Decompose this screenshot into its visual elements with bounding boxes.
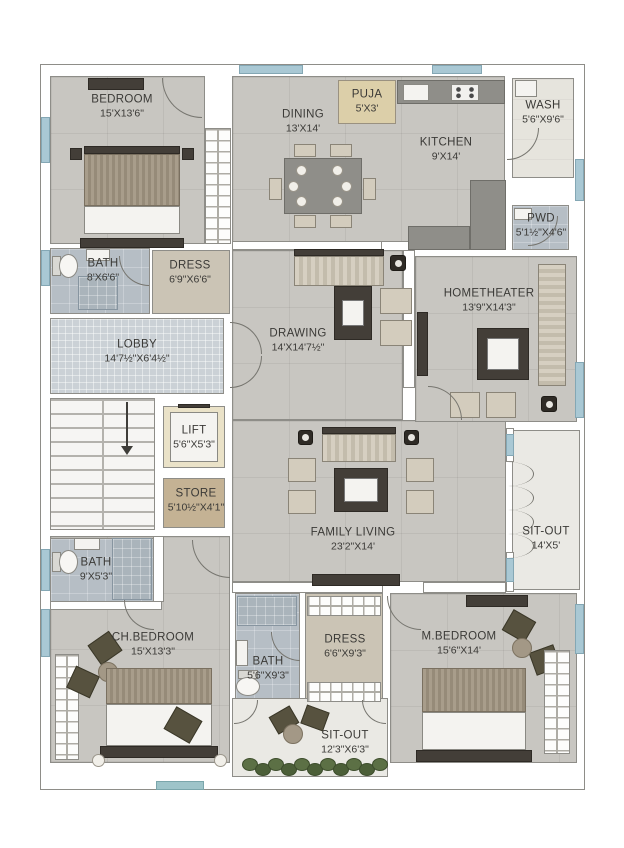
window — [156, 781, 204, 790]
room-label-lobby: LOBBY14'7½"X6'4½" — [104, 338, 169, 367]
bed-footboard — [416, 750, 532, 762]
room-dimensions: 5'6"X9'3" — [247, 670, 289, 684]
room-dimensions: 15'X13'3" — [112, 646, 194, 660]
room-dimensions: 6'6"X9'3" — [324, 648, 366, 662]
tv-screen — [342, 300, 364, 326]
room-label-wash: WASH5'6"X9'6" — [522, 99, 564, 128]
dining-chair — [294, 144, 316, 157]
speaker-dot — [408, 434, 415, 441]
lift-door — [178, 404, 210, 408]
speaker-dot — [395, 260, 402, 267]
stairs-arrow-line — [126, 402, 128, 446]
armchair — [288, 458, 316, 482]
room-name: HOMETHEATER — [444, 287, 535, 302]
bed-sheet — [84, 206, 180, 234]
shower-area — [112, 538, 152, 600]
kitchen-counter — [408, 226, 470, 250]
speaker-dot — [546, 401, 553, 408]
room-dimensions: 23'2"X14' — [311, 541, 396, 555]
room-name: STORE — [168, 487, 224, 502]
room-dimensions: 14'X14'7½" — [269, 342, 326, 356]
window — [432, 65, 482, 74]
plate — [288, 181, 299, 192]
sofa — [322, 434, 396, 462]
tv-wall-unit — [417, 312, 428, 376]
window — [575, 159, 584, 201]
bed-sheet — [422, 712, 526, 750]
room-name: WASH — [522, 99, 564, 114]
wall-bath-left-r — [153, 536, 164, 602]
toilet — [52, 550, 78, 572]
window — [41, 549, 50, 591]
room-name: PUJA — [352, 88, 383, 103]
toilet-bowl — [59, 550, 78, 574]
room-name: KITCHEN — [420, 136, 473, 151]
wall-family-south-b — [423, 582, 506, 593]
room-label-dining: DINING13'X14' — [282, 108, 324, 137]
room-label-puja: PUJA5'X3' — [352, 88, 383, 117]
speaker-icon — [390, 255, 406, 271]
room-label-lift: LIFT5'6"X5'3" — [173, 424, 215, 453]
bed-duvet — [422, 668, 526, 712]
room-dimensions: 5'1½"X4'6" — [516, 227, 567, 241]
dining-chair — [269, 178, 282, 200]
patio-table — [283, 724, 303, 744]
armchair — [380, 320, 412, 346]
bed-duvet — [84, 154, 180, 206]
window — [41, 117, 50, 163]
stool — [92, 754, 105, 767]
room-name: BATH — [247, 655, 289, 670]
window — [506, 558, 514, 582]
toilet-bowl — [59, 254, 78, 278]
room-label-pwd: PWD5'1½"X4'6" — [516, 212, 567, 241]
room-dimensions: 6'9"X6'6" — [169, 274, 211, 288]
room-name: SIT-OUT — [522, 525, 569, 540]
wardrobe — [307, 596, 381, 616]
room-dimensions: 14'X5' — [522, 540, 569, 554]
room-name: LIFT — [173, 424, 215, 439]
ht-screen — [487, 338, 519, 370]
dining-chair — [330, 144, 352, 157]
room-dimensions: 15'X13'6" — [91, 108, 153, 122]
room-dimensions: 12'3"X6'3" — [321, 744, 369, 758]
room-label-m-bedroom: M.BEDROOM15'6"X14' — [422, 630, 497, 659]
room-name: CH.BEDROOM — [112, 631, 194, 646]
armchair — [406, 458, 434, 482]
floor-plan: BEDROOM15'X13'6"DINING13'X14'PUJA5'X3'KI… — [0, 0, 624, 848]
room-label-sitout-bottom: SIT-OUT12'3"X6'3" — [321, 729, 369, 758]
armchair — [486, 392, 516, 418]
room-name: LOBBY — [104, 338, 169, 353]
room-label-bath-left: BATH9'X5'3" — [80, 556, 112, 585]
plate — [332, 196, 343, 207]
kitchen-counter — [470, 180, 506, 250]
window — [41, 609, 50, 657]
sofa-back — [322, 427, 396, 434]
dining-chair — [363, 178, 376, 200]
speaker-icon — [298, 430, 313, 445]
window — [506, 434, 514, 456]
armchair — [406, 490, 434, 514]
dresser — [88, 78, 144, 90]
armchair — [288, 490, 316, 514]
room-dimensions: 9'X5'3" — [80, 571, 112, 585]
nightstand — [182, 148, 194, 160]
room-dimensions: 15'6"X14' — [422, 645, 497, 659]
room-dimensions: 8'X6'6" — [87, 272, 119, 286]
bed-headboard — [84, 146, 180, 154]
sofa — [294, 256, 384, 286]
room-name: SIT-OUT — [321, 729, 369, 744]
plate — [332, 165, 343, 176]
plate — [296, 196, 307, 207]
dining-chair — [294, 215, 316, 228]
floor-stairs — [50, 398, 155, 530]
nightstand — [70, 148, 82, 160]
room-dimensions: 13'X14' — [282, 123, 324, 137]
armchair — [380, 288, 412, 314]
bed-footboard — [100, 746, 218, 758]
room-name: M.BEDROOM — [422, 630, 497, 645]
room-label-bedroom: BEDROOM15'X13'6" — [91, 93, 153, 122]
plant-icon — [372, 758, 388, 771]
dresser — [466, 595, 528, 607]
room-name: DRESS — [324, 633, 366, 648]
room-label-drawing: DRAWING14'X14'7½" — [269, 327, 326, 356]
bath-sink — [74, 538, 100, 550]
speaker-icon — [404, 430, 419, 445]
bed-duvet — [106, 668, 212, 704]
wardrobe — [205, 128, 231, 244]
dining-chair — [330, 215, 352, 228]
room-label-bath-top: BATH8'X6'6" — [87, 257, 119, 286]
floor-sitout-right — [512, 430, 580, 590]
window — [575, 362, 584, 418]
room-dimensions: 14'7½"X6'4½" — [104, 353, 169, 367]
room-label-hometheater: HOMETHEATER13'9"X14'3" — [444, 287, 535, 316]
room-label-kitchen: KITCHEN9'X14' — [420, 136, 473, 165]
wall-drawing-hometheater — [403, 250, 415, 388]
room-name: PWD — [516, 212, 567, 227]
window — [575, 604, 584, 654]
shower-area — [237, 596, 297, 626]
room-dimensions: 5'6"X5'3" — [173, 439, 215, 453]
kitchen-sink — [403, 84, 429, 101]
room-label-sitout-right: SIT-OUT14'X5' — [522, 525, 569, 554]
toilet — [52, 254, 78, 276]
room-name: FAMILY LIVING — [311, 526, 396, 541]
room-name: BATH — [87, 257, 119, 272]
room-dimensions: 13'9"X14'3" — [444, 302, 535, 316]
window — [239, 65, 303, 74]
room-dimensions: 9'X14' — [420, 151, 473, 165]
speaker-icon — [541, 396, 557, 412]
room-name: BATH — [80, 556, 112, 571]
plate — [341, 181, 352, 192]
table-top — [344, 478, 378, 502]
room-name: DINING — [282, 108, 324, 123]
room-name: BEDROOM — [91, 93, 153, 108]
window — [41, 250, 50, 286]
sofa — [538, 264, 566, 386]
tv-cabinet — [312, 574, 400, 586]
stool — [214, 754, 227, 767]
bed-bench — [80, 238, 184, 248]
room-dimensions: 5'X3' — [352, 103, 383, 117]
washing-machine — [515, 80, 537, 97]
room-label-dress-top: DRESS6'9"X6'6" — [169, 259, 211, 288]
sofa-back — [294, 249, 384, 256]
room-dimensions: 5'6"X9'6" — [522, 114, 564, 128]
kitchen-hob — [451, 84, 479, 101]
round-table — [512, 638, 532, 658]
wardrobe — [307, 682, 381, 702]
room-name: DRESS — [169, 259, 211, 274]
stairs-arrow-down-icon — [121, 446, 133, 455]
room-label-dress-bottom: DRESS6'6"X9'3" — [324, 633, 366, 662]
room-label-bath-bottom: BATH5'6"X9'3" — [247, 655, 289, 684]
room-label-ch-bedroom: CH.BEDROOM15'X13'3" — [112, 631, 194, 660]
speaker-dot — [302, 434, 309, 441]
room-label-family-living: FAMILY LIVING23'2"X14' — [311, 526, 396, 555]
wardrobe — [544, 650, 570, 754]
room-name: DRAWING — [269, 327, 326, 342]
room-dimensions: 5'10½"X4'1" — [168, 502, 224, 516]
room-label-store: STORE5'10½"X4'1" — [168, 487, 224, 516]
plate — [296, 165, 307, 176]
